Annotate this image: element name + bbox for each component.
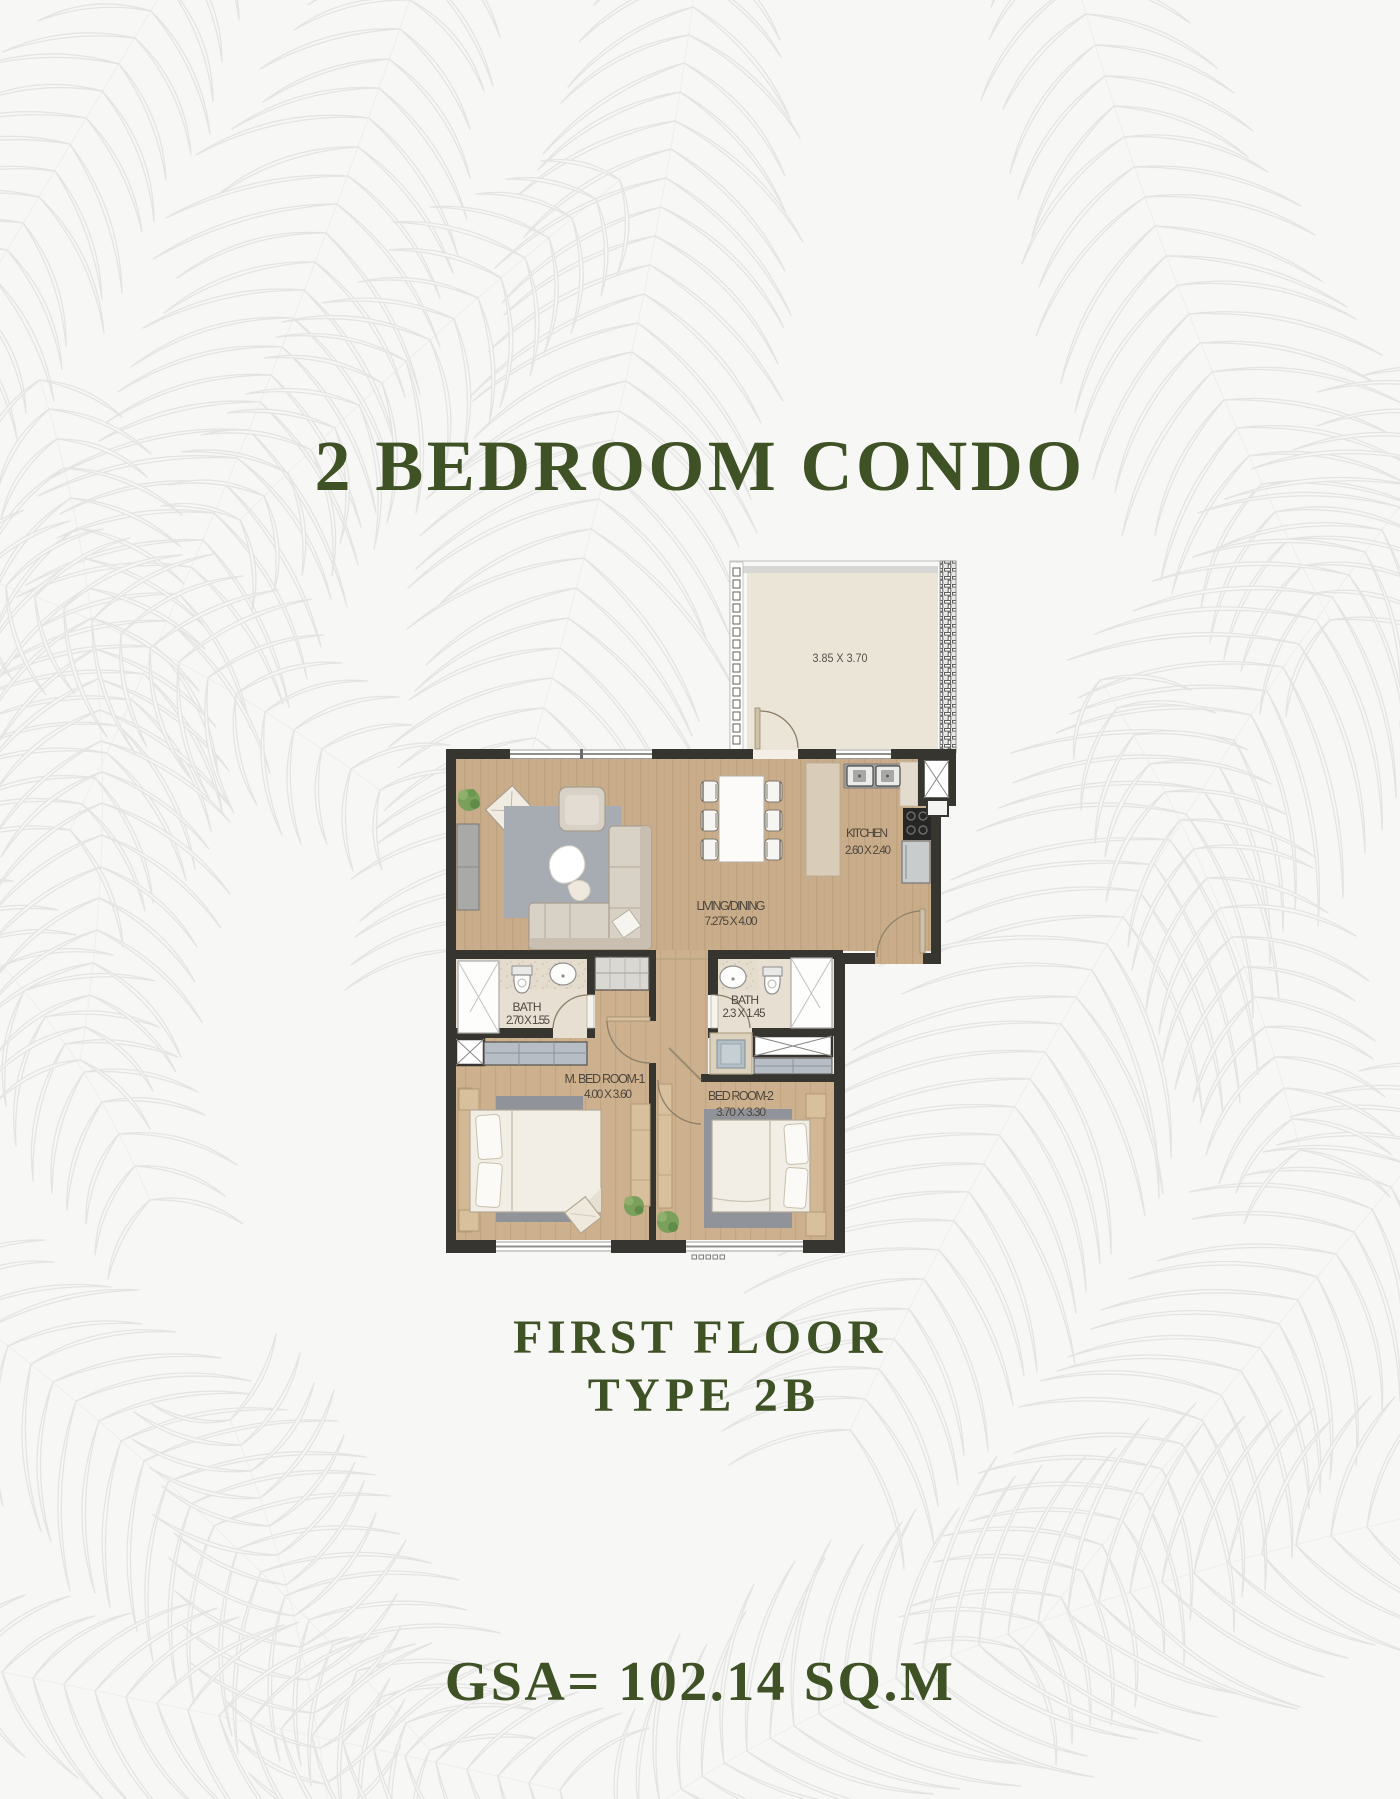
svg-text:2.60 X 2.40: 2.60 X 2.40	[845, 845, 891, 857]
svg-text:M. BED ROOM-1: M. BED ROOM-1	[565, 1072, 646, 1086]
svg-text:BATH: BATH	[513, 1000, 542, 1014]
svg-text:KITCHEN: KITCHEN	[846, 826, 888, 840]
svg-text:LIVING/DINING: LIVING/DINING	[697, 899, 766, 913]
svg-text:4.00 X 3.60: 4.00 X 3.60	[584, 1087, 632, 1101]
svg-text:2.70 X 1.55: 2.70 X 1.55	[506, 1015, 550, 1027]
svg-text:BED ROOM-2: BED ROOM-2	[708, 1089, 774, 1103]
svg-text:FIRST FLOOR: FIRST FLOOR	[513, 1311, 887, 1364]
svg-text:2 BEDROOM CONDO: 2 BEDROOM CONDO	[315, 426, 1086, 506]
svg-text:7.275 X 4.00: 7.275 X 4.00	[705, 914, 758, 928]
svg-text:GSA= 102.14 SQ.M: GSA= 102.14 SQ.M	[445, 1651, 956, 1713]
svg-text:2.3 X 1.45: 2.3 X 1.45	[723, 1008, 766, 1020]
svg-text:3.70 X 3.30: 3.70 X 3.30	[716, 1105, 766, 1119]
svg-text:3.85 X 3.70: 3.85 X 3.70	[813, 651, 868, 665]
svg-text:TYPE 2B: TYPE 2B	[588, 1369, 820, 1422]
svg-text:BATH: BATH	[731, 993, 759, 1007]
